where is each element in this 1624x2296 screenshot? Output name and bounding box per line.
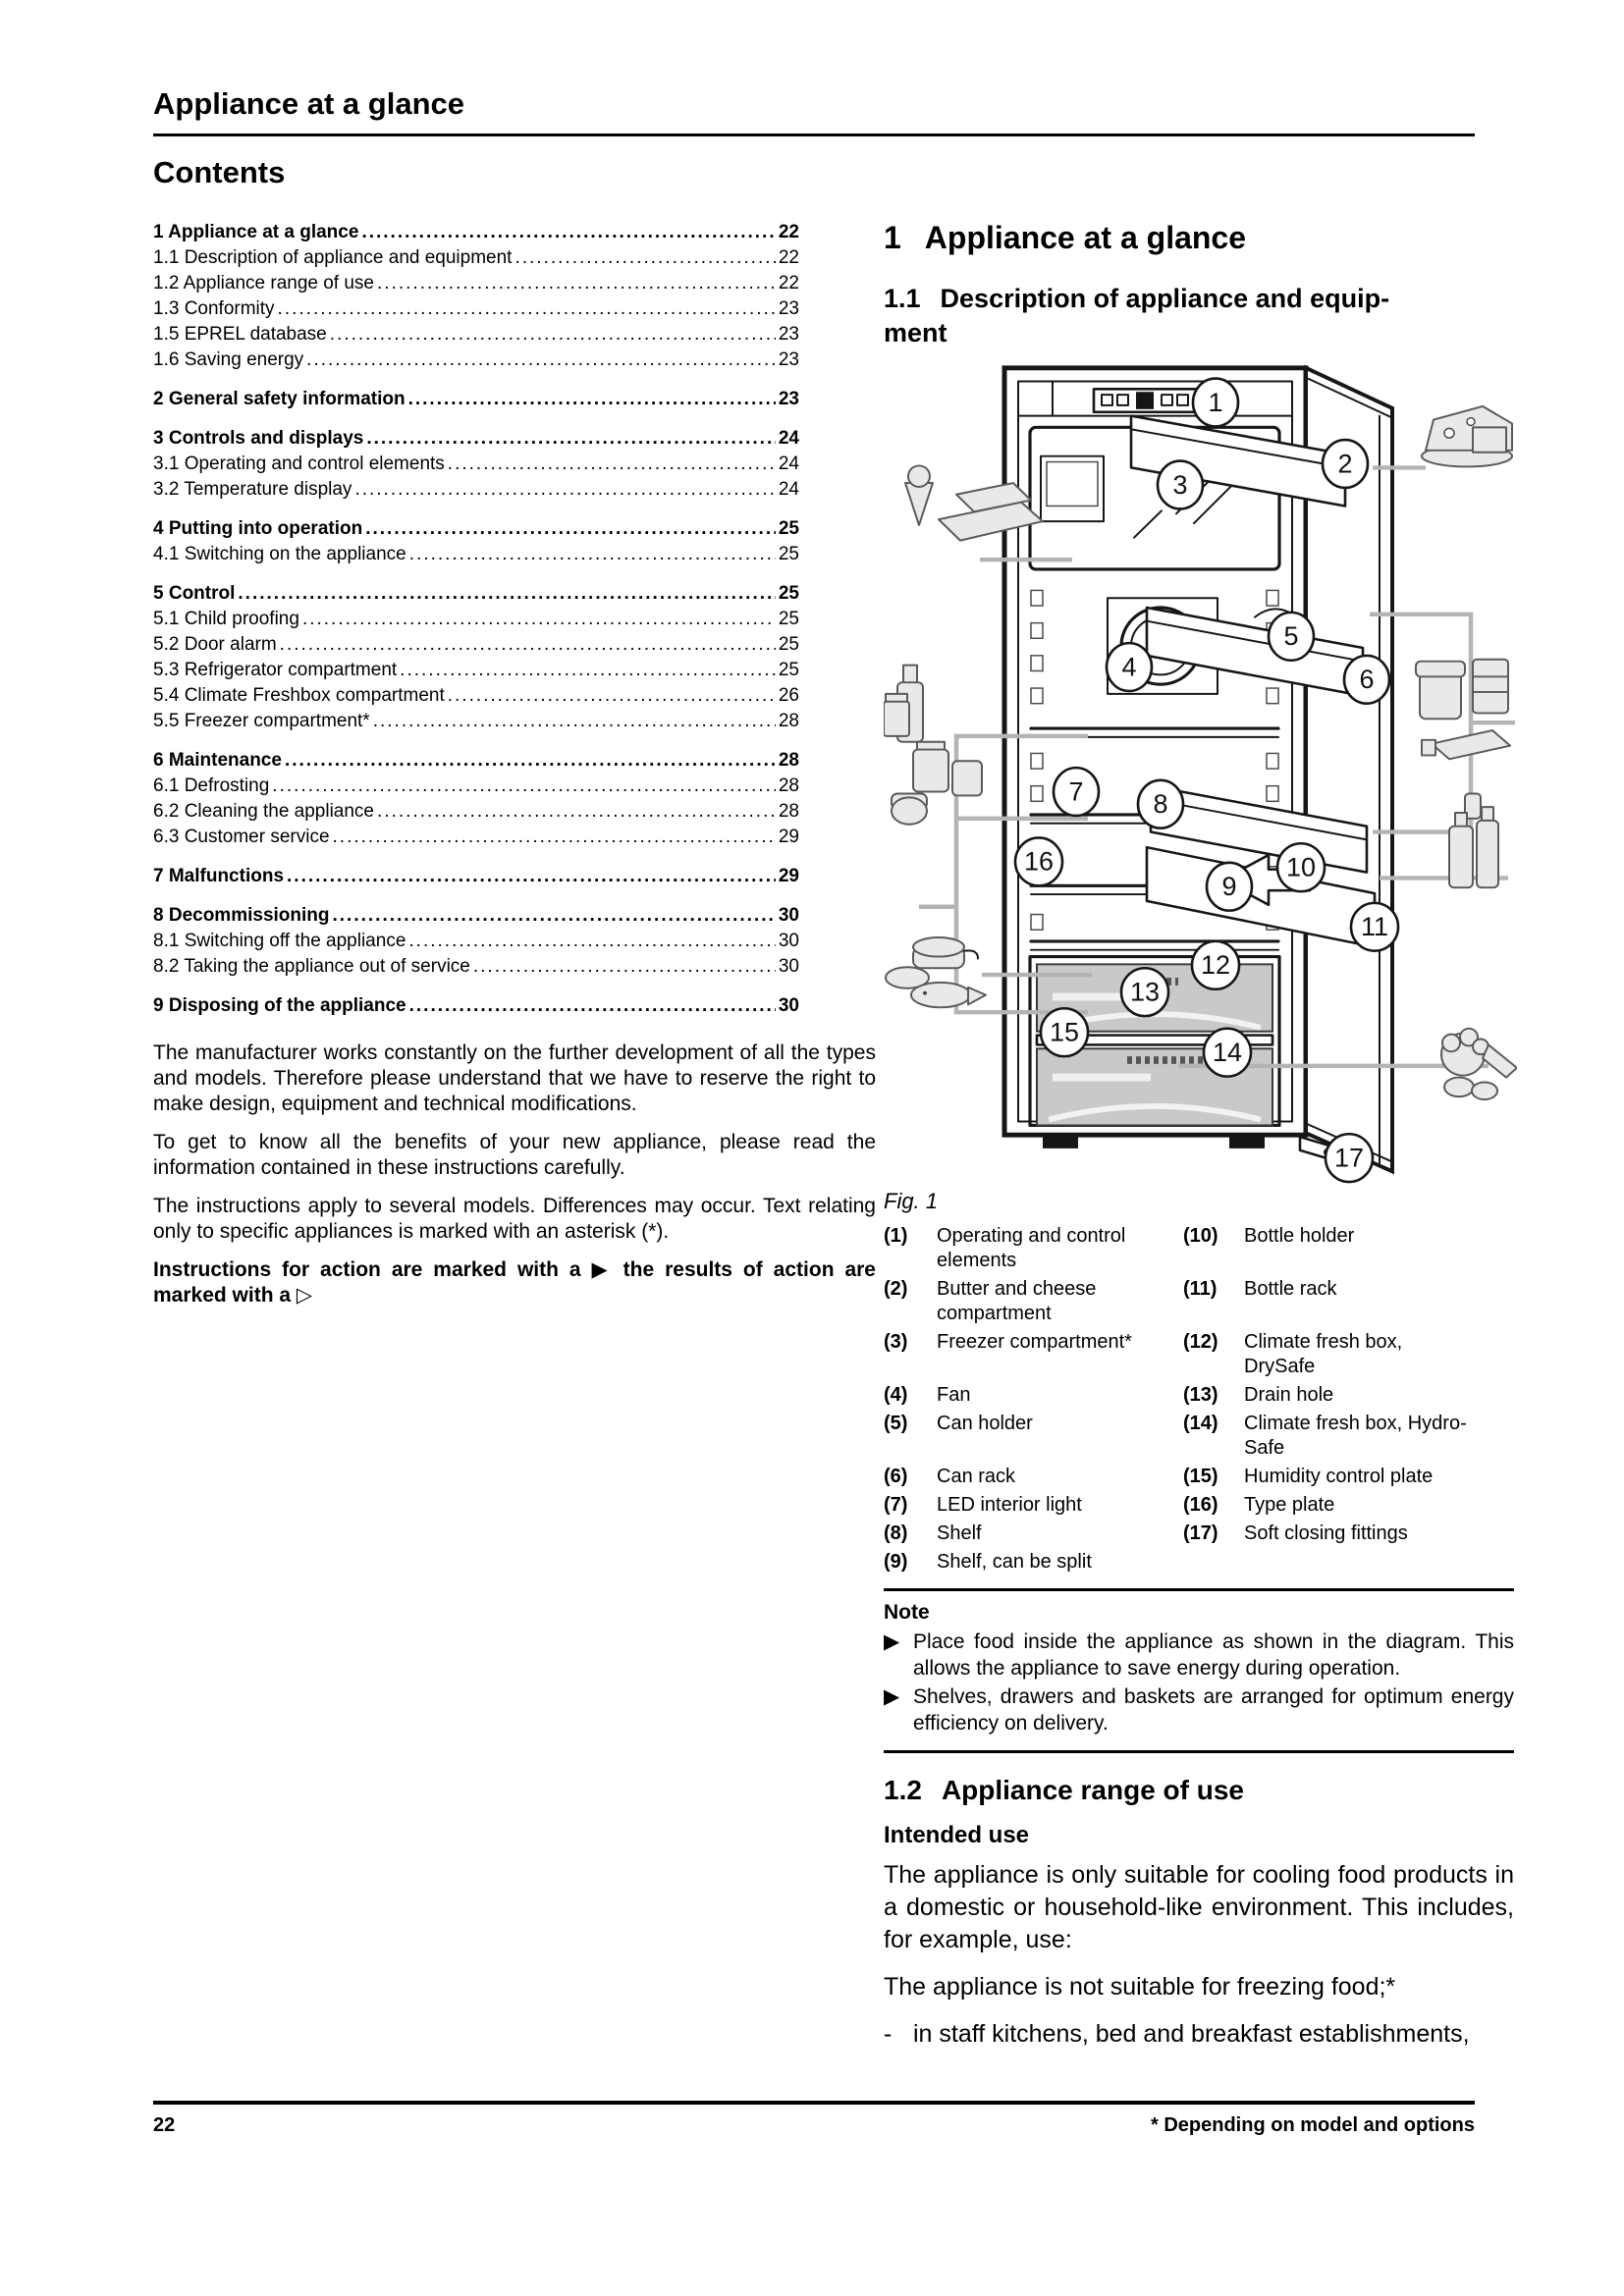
toc-label: 4.1 Switching on the appliance <box>153 542 406 567</box>
legend-item: (17)Soft closing fittings <box>1183 1522 1514 1546</box>
legend-number: (12) <box>1183 1330 1244 1379</box>
section-number: 1 <box>884 220 901 255</box>
page-title: Appliance at a glance <box>153 86 464 122</box>
legend-text: Freezer compartment* <box>937 1330 1132 1379</box>
svg-text:12: 12 <box>1201 950 1230 980</box>
legend-text: Shelf <box>937 1522 982 1546</box>
figure-callout-12: 12 <box>1192 941 1239 989</box>
legend-number: (9) <box>884 1550 937 1575</box>
food-illustration-jars-tube <box>1416 660 1510 760</box>
legend-number: (13) <box>1183 1383 1244 1408</box>
toc-label: 1.2 Appliance range of use <box>153 271 374 296</box>
toc-entry: 3 Controls and displays24 <box>153 426 799 452</box>
svg-text:15: 15 <box>1050 1018 1079 1047</box>
legend-row: (1)Operating and control elements (10)Bo… <box>884 1224 1514 1273</box>
intro-paragraphs: The manufacturer works constantly on the… <box>153 1041 876 1308</box>
figure-legend: (1)Operating and control elements (10)Bo… <box>884 1224 1514 1575</box>
manual-page: Appliance at a glance Contents 1 Applian… <box>0 0 1624 2296</box>
toc-entry: 4.1 Switching on the appliance25 <box>153 542 799 567</box>
svg-text:2: 2 <box>1337 450 1352 479</box>
svg-text:14: 14 <box>1213 1038 1242 1067</box>
note-item: ▶ Place food inside the appliance as sho… <box>884 1629 1514 1682</box>
toc-entry: 1 Appliance at a glance22 <box>153 220 799 245</box>
toc-page: 30 <box>779 993 799 1019</box>
header-rule <box>153 133 1475 136</box>
toc-entry: 2 General safety information23 <box>153 387 799 412</box>
toc-label: 6.1 Defrosting <box>153 774 269 799</box>
svg-text:3: 3 <box>1172 470 1187 500</box>
svg-text:9: 9 <box>1221 872 1236 901</box>
toc-page: 22 <box>779 245 799 271</box>
toc-entry: 1.6 Saving energy23 <box>153 347 799 373</box>
toc-label: 5.5 Freezer compartment* <box>153 709 370 734</box>
legend-item: (8)Shelf <box>884 1522 1183 1546</box>
toc-label: 2 General safety information <box>153 387 406 412</box>
legend-item: (7)LED interior light <box>884 1493 1183 1518</box>
section-number: 1.2 <box>884 1775 922 1805</box>
legend-text: Climate fresh box, Hydro- Safe <box>1244 1412 1467 1461</box>
legend-text: Soft closing fittings <box>1244 1522 1408 1546</box>
toc-entry: 1.5 EPREL database23 <box>153 322 799 347</box>
note-title: Note <box>884 1601 1514 1625</box>
svg-text:17: 17 <box>1334 1144 1364 1173</box>
toc-label: 5.2 Door alarm <box>153 632 277 658</box>
legend-number: (14) <box>1183 1412 1244 1461</box>
intro-paragraph-marks: Instructions for action are marked with … <box>153 1257 876 1308</box>
note-text: Shelves, drawers and baskets are arrange… <box>913 1683 1514 1736</box>
toc-entry: 1.2 Appliance range of use22 <box>153 271 799 296</box>
toc-dot-leader <box>408 929 775 954</box>
legend-text: Fan <box>937 1383 970 1408</box>
toc-entry: 8 Decommissioning30 <box>153 903 799 929</box>
svg-text:10: 10 <box>1286 853 1316 882</box>
toc-label: 1 Appliance at a glance <box>153 220 358 245</box>
legend-text: LED interior light <box>937 1493 1082 1518</box>
toc-entry: 6 Maintenance28 <box>153 748 799 774</box>
svg-text:8: 8 <box>1153 789 1167 819</box>
note-divider-top <box>884 1588 1514 1591</box>
figure-callout-1: 1 <box>1193 379 1238 427</box>
figure-callout-5: 5 <box>1269 613 1314 661</box>
toc-label: 4 Putting into operation <box>153 516 362 542</box>
toc-page: 29 <box>779 864 799 889</box>
svg-text:5: 5 <box>1283 621 1298 651</box>
legend-item: (13)Drain hole <box>1183 1383 1514 1408</box>
table-of-contents: 1 Appliance at a glance22 1.1 Descriptio… <box>153 220 799 1019</box>
figure-callout-14: 14 <box>1204 1029 1251 1077</box>
footer-rule <box>153 2101 1475 2105</box>
legend-row: (4)Fan (13)Drain hole <box>884 1383 1514 1408</box>
legend-item: (3)Freezer compartment* <box>884 1330 1183 1379</box>
toc-entry: 3.2 Temperature display24 <box>153 477 799 503</box>
intro-paragraph: The manufacturer works constantly on the… <box>153 1041 876 1117</box>
toc-entry: 5.4 Climate Freshbox compartment26 <box>153 683 799 709</box>
toc-label: 3.1 Operating and control elements <box>153 452 445 477</box>
legend-number: (1) <box>884 1224 937 1273</box>
toc-dot-leader <box>377 271 776 296</box>
triangle-bullet-icon: ▶ <box>884 1629 913 1682</box>
toc-entry: 5.1 Child proofing25 <box>153 607 799 632</box>
svg-text:4: 4 <box>1121 653 1136 682</box>
intended-use-heading: Intended use <box>884 1822 1514 1849</box>
toc-label: 5.3 Refrigerator compartment <box>153 658 397 683</box>
toc-entry: 5 Control25 <box>153 581 799 607</box>
toc-label: 8 Decommissioning <box>153 903 330 929</box>
toc-page: 25 <box>779 516 799 542</box>
toc-dot-leader <box>373 709 776 734</box>
figure-callout-3: 3 <box>1158 461 1203 509</box>
figure-callout-17: 17 <box>1326 1134 1373 1182</box>
figure-callout-11: 11 <box>1351 903 1398 951</box>
toc-label: 7 Malfunctions <box>153 864 284 889</box>
section-1-heading: 1Appliance at a glance <box>884 220 1514 256</box>
toc-label: 5.1 Child proofing <box>153 607 299 632</box>
svg-text:1: 1 <box>1208 388 1222 417</box>
svg-text:13: 13 <box>1130 978 1160 1007</box>
toc-entry: 3.1 Operating and control elements24 <box>153 452 799 477</box>
note-divider-bottom <box>884 1750 1514 1753</box>
toc-label: 9 Disposing of the appliance <box>153 993 406 1019</box>
toc-page: 24 <box>779 426 799 452</box>
legend-number: (10) <box>1183 1224 1244 1273</box>
toc-page: 25 <box>779 632 799 658</box>
toc-page: 23 <box>779 387 799 412</box>
section-1-2-heading: 1.2Appliance range of use <box>884 1775 1514 1806</box>
legend-row: (5)Can holder (14)Climate fresh box, Hyd… <box>884 1412 1514 1461</box>
legend-row: (3)Freezer compartment* (12)Climate fres… <box>884 1330 1514 1379</box>
toc-label: 6.3 Customer service <box>153 825 330 850</box>
section-title: Description of appliance and equip- ment <box>884 284 1389 347</box>
figure-callout-9: 9 <box>1207 863 1252 911</box>
figure-callout-4: 4 <box>1107 643 1152 691</box>
figure-callout-2: 2 <box>1323 440 1368 488</box>
figure-callout-15: 15 <box>1041 1008 1088 1056</box>
toc-dot-leader <box>377 799 776 825</box>
toc-label: 3 Controls and displays <box>153 426 363 452</box>
toc-dot-leader <box>333 825 776 850</box>
toc-dot-leader <box>361 220 775 245</box>
contents-title: Contents <box>153 155 876 190</box>
legend-item: (2)Butter and cheese compartment <box>884 1277 1183 1326</box>
section-title: Appliance range of use <box>942 1775 1244 1805</box>
toc-page: 28 <box>779 748 799 774</box>
legend-text: Climate fresh box, DrySafe <box>1244 1330 1402 1379</box>
figure-caption: Fig. 1 <box>884 1189 1514 1214</box>
toc-dot-leader <box>354 477 775 503</box>
toc-page: 28 <box>779 799 799 825</box>
legend-text: Bottle holder <box>1244 1224 1354 1273</box>
fridge-foot <box>1043 1135 1078 1148</box>
body-paragraph: The appliance is only suitable for cooli… <box>884 1859 1514 1956</box>
legend-item: (9)Shelf, can be split <box>884 1550 1183 1575</box>
toc-dot-leader <box>409 993 776 1019</box>
legend-number: (17) <box>1183 1522 1244 1546</box>
toc-dot-leader <box>302 607 776 632</box>
toc-dot-leader <box>287 864 776 889</box>
toc-page: 23 <box>779 322 799 347</box>
food-illustration-milk-bottles <box>1449 793 1498 887</box>
toc-entry: 8.1 Switching off the appliance30 <box>153 929 799 954</box>
food-illustration-cheese <box>1422 406 1512 467</box>
legend-text: Can holder <box>937 1412 1033 1461</box>
footer-model-note: * Depending on model and options <box>153 2114 1475 2137</box>
legend-item: (5)Can holder <box>884 1412 1183 1461</box>
legend-item: (4)Fan <box>884 1383 1183 1408</box>
legend-number: (2) <box>884 1277 937 1326</box>
legend-number: (16) <box>1183 1493 1244 1518</box>
figure-callout-10: 10 <box>1277 843 1325 891</box>
toc-dot-leader <box>330 322 776 347</box>
toc-entry: 6.2 Cleaning the appliance28 <box>153 799 799 825</box>
toc-label: 3.2 Temperature display <box>153 477 352 503</box>
toc-dot-leader <box>333 903 776 929</box>
right-column: 1Appliance at a glance 1.1Description of… <box>884 220 1514 2051</box>
legend-item: (11)Bottle rack <box>1183 1277 1514 1326</box>
legend-text: Operating and control elements <box>937 1224 1125 1273</box>
legend-item: (1)Operating and control elements <box>884 1224 1183 1273</box>
toc-page: 22 <box>779 271 799 296</box>
food-illustration-bottles-cups <box>884 666 982 825</box>
toc-dot-leader <box>448 683 776 709</box>
legend-number: (4) <box>884 1383 937 1408</box>
figure-callout-7: 7 <box>1054 768 1099 816</box>
list-text: in staff kitchens, bed and breakfast est… <box>913 2018 1514 2051</box>
toc-page: 29 <box>779 825 799 850</box>
toc-label: 6 Maintenance <box>153 748 282 774</box>
toc-label: 6.2 Cleaning the appliance <box>153 799 374 825</box>
legend-item: (14)Climate fresh box, Hydro- Safe <box>1183 1412 1514 1461</box>
toc-page: 28 <box>779 709 799 734</box>
legend-text: Type plate <box>1244 1493 1334 1518</box>
figure-callout-6: 6 <box>1344 656 1389 704</box>
legend-row: (7)LED interior light (16)Type plate <box>884 1493 1514 1518</box>
toc-dot-leader <box>400 658 776 683</box>
toc-dot-leader <box>238 581 775 607</box>
legend-number: (11) <box>1183 1277 1244 1326</box>
legend-number: (5) <box>884 1412 937 1461</box>
figure-callout-13: 13 <box>1121 968 1168 1016</box>
toc-entry: 5.3 Refrigerator compartment25 <box>153 658 799 683</box>
toc-page: 30 <box>779 954 799 980</box>
legend-item: (10)Bottle holder <box>1183 1224 1514 1273</box>
toc-dot-leader <box>272 774 776 799</box>
toc-entry: 8.2 Taking the appliance out of service3… <box>153 954 799 980</box>
toc-dot-leader <box>448 452 776 477</box>
note-item: ▶ Shelves, drawers and baskets are arran… <box>884 1683 1514 1736</box>
legend-text: Butter and cheese compartment <box>937 1277 1096 1326</box>
legend-text: Bottle rack <box>1244 1277 1336 1326</box>
intro-paragraph: To get to know all the benefits of your … <box>153 1130 876 1181</box>
toc-page: 30 <box>779 929 799 954</box>
toc-entry: 9 Disposing of the appliance30 <box>153 993 799 1019</box>
toc-entry: 4 Putting into operation25 <box>153 516 799 542</box>
toc-label: 8.2 Taking the appliance out of service <box>153 954 470 980</box>
svg-text:7: 7 <box>1068 777 1083 807</box>
intro-paragraph: The instructions apply to several models… <box>153 1194 876 1245</box>
toc-dot-leader <box>408 387 776 412</box>
legend-text: Shelf, can be split <box>937 1550 1092 1575</box>
toc-page: 23 <box>779 296 799 322</box>
dash-marker: - <box>884 2018 913 2051</box>
food-illustration-pot-fish <box>886 937 986 1007</box>
legend-text: Can rack <box>937 1465 1015 1489</box>
toc-page: 30 <box>779 903 799 929</box>
toc-entry: 5.5 Freezer compartment*28 <box>153 709 799 734</box>
toc-entry: 6.1 Defrosting28 <box>153 774 799 799</box>
toc-label: 1.6 Saving energy <box>153 347 303 373</box>
figure-callout-8: 8 <box>1138 780 1183 828</box>
toc-page: 25 <box>779 607 799 632</box>
toc-dot-leader <box>514 245 775 271</box>
toc-dot-leader <box>409 542 776 567</box>
toc-entry: 5.2 Door alarm25 <box>153 632 799 658</box>
toc-entry: 6.3 Customer service29 <box>153 825 799 850</box>
dash-list-item: - in staff kitchens, bed and breakfast e… <box>884 2018 1514 2051</box>
toc-page: 25 <box>779 658 799 683</box>
toc-entry: 7 Malfunctions29 <box>153 864 799 889</box>
toc-page: 22 <box>779 220 799 245</box>
legend-item: (6)Can rack <box>884 1465 1183 1489</box>
legend-number: (15) <box>1183 1465 1244 1489</box>
legend-row: (8)Shelf (17)Soft closing fittings <box>884 1522 1514 1546</box>
toc-dot-leader <box>473 954 776 980</box>
figure-callout-16: 16 <box>1015 837 1062 885</box>
legend-number: (3) <box>884 1330 937 1379</box>
toc-label: 1.3 Conformity <box>153 296 275 322</box>
legend-item: (12)Climate fresh box, DrySafe <box>1183 1330 1514 1379</box>
toc-page: 25 <box>779 581 799 607</box>
legend-row: (2)Butter and cheese compartment (11)Bot… <box>884 1277 1514 1326</box>
toc-label: 5 Control <box>153 581 235 607</box>
toc-dot-leader <box>365 516 776 542</box>
legend-number: (7) <box>884 1493 937 1518</box>
section-1-1-heading: 1.1Description of appliance and equip- m… <box>884 282 1514 350</box>
legend-number: (8) <box>884 1522 937 1546</box>
toc-entry: 1.1 Description of appliance and equipme… <box>153 245 799 271</box>
fridge-diagram-svg: 1 2 3 4 5 6 7 8 9 10 11 12 13 14 15 16 1… <box>884 360 1517 1185</box>
section-number: 1.1 <box>884 284 921 313</box>
toc-dot-leader <box>285 748 776 774</box>
svg-text:11: 11 <box>1361 912 1388 941</box>
svg-text:6: 6 <box>1359 665 1374 694</box>
legend-row: (9)Shelf, can be split <box>884 1550 1514 1575</box>
toc-label: 8.1 Switching off the appliance <box>153 929 406 954</box>
intended-use-body: The appliance is only suitable for cooli… <box>884 1859 1514 2051</box>
appliance-figure: 1 2 3 4 5 6 7 8 9 10 11 12 13 14 15 16 1… <box>884 360 1517 1185</box>
triangle-bullet-icon: ▶ <box>884 1683 913 1736</box>
legend-text: Drain hole <box>1244 1383 1333 1408</box>
legend-text: Humidity control plate <box>1244 1465 1433 1489</box>
legend-row: (6)Can rack (15)Humidity control plate <box>884 1465 1514 1489</box>
note-text: Place food inside the appliance as shown… <box>913 1629 1514 1682</box>
toc-label: 5.4 Climate Freshbox compartment <box>153 683 445 709</box>
toc-page: 26 <box>779 683 799 709</box>
toc-label: 1.1 Description of appliance and equipme… <box>153 245 512 271</box>
toc-page: 28 <box>779 774 799 799</box>
legend-item: (15)Humidity control plate <box>1183 1465 1514 1489</box>
legend-number: (6) <box>884 1465 937 1489</box>
legend-item: (16)Type plate <box>1183 1493 1514 1518</box>
toc-dot-leader <box>280 632 776 658</box>
toc-page: 23 <box>779 347 799 373</box>
fridge-foot <box>1229 1135 1265 1148</box>
toc-page: 25 <box>779 542 799 567</box>
toc-entry: 1.3 Conformity23 <box>153 296 799 322</box>
svg-text:16: 16 <box>1024 847 1054 877</box>
toc-page: 24 <box>779 452 799 477</box>
left-column: Contents 1 Appliance at a glance22 1.1 D… <box>153 155 876 1321</box>
food-illustration-vegetables <box>1441 1029 1517 1099</box>
body-paragraph: The appliance is not suitable for freezi… <box>884 1971 1514 2003</box>
toc-page: 24 <box>779 477 799 503</box>
toc-dot-leader <box>366 426 776 452</box>
toc-label: 1.5 EPREL database <box>153 322 327 347</box>
toc-dot-leader <box>278 296 776 322</box>
toc-dot-leader <box>306 347 776 373</box>
section-title: Appliance at a glance <box>925 220 1246 255</box>
